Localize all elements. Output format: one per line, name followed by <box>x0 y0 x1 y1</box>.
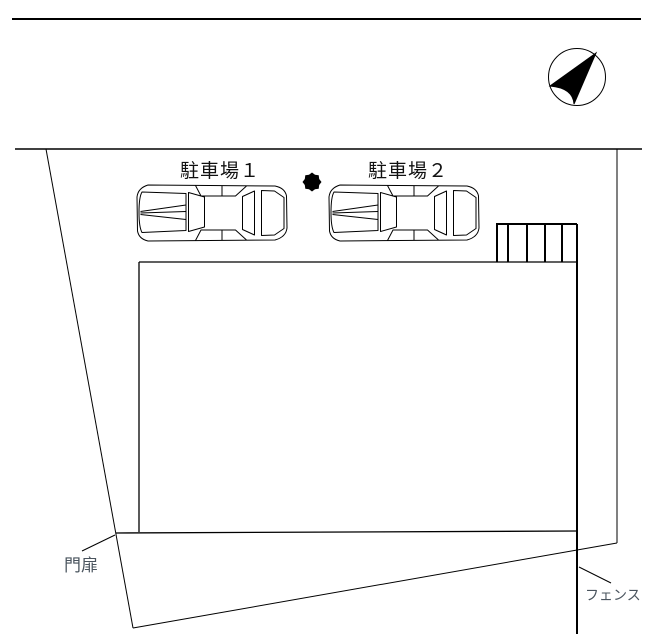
gate-leader-line <box>82 535 115 551</box>
steps-partition-lines <box>508 224 562 262</box>
site-plan-drawing: 駐車場１ 駐車場２ 門扉 フェンス <box>0 0 663 639</box>
building-bottom-line <box>116 531 577 533</box>
compass-north-arrow-icon <box>549 49 606 106</box>
fence-label: フェンス <box>585 588 641 604</box>
fence-leader-line <box>579 567 611 583</box>
car-top-view-2 <box>329 185 479 241</box>
bottom-boundary-line <box>133 543 617 628</box>
site-plan-page: 駐車場１ 駐車場２ 門扉 フェンス <box>0 0 663 639</box>
steps-structure <box>497 224 577 262</box>
tree-icon <box>303 173 322 192</box>
north-arrow-icon <box>550 53 596 104</box>
parking-spot-2-label: 駐車場２ <box>368 160 448 182</box>
gate-label: 門扉 <box>64 556 98 576</box>
building-outline <box>116 262 577 533</box>
parking-spot-1-label: 駐車場１ <box>180 160 260 182</box>
car-top-view-1 <box>137 185 287 241</box>
